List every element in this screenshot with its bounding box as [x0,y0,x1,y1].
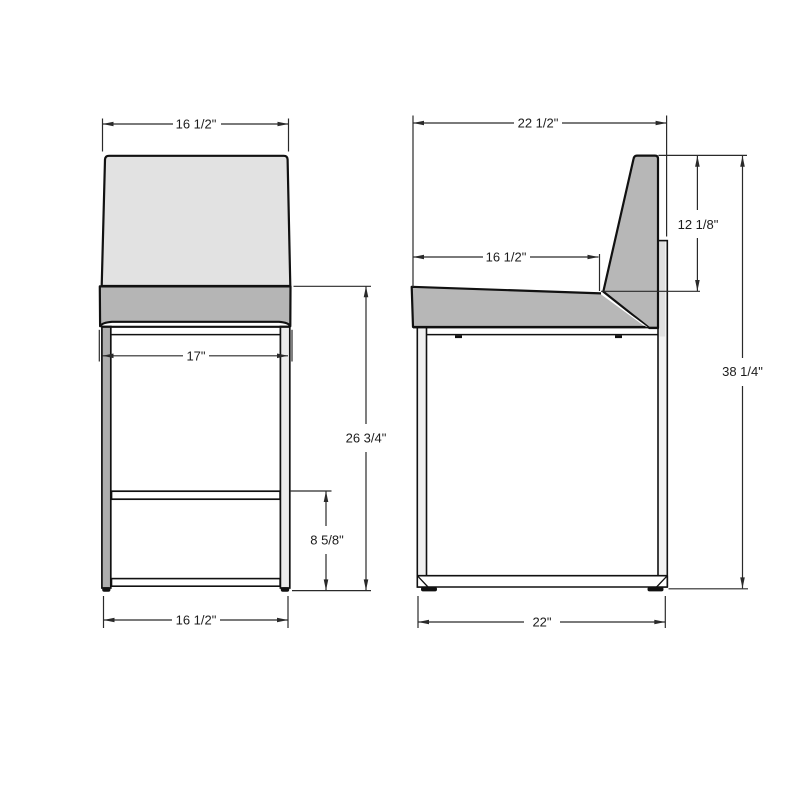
svg-text:22": 22" [532,615,551,630]
svg-text:16 1/2": 16 1/2" [176,613,217,628]
svg-text:16 1/2": 16 1/2" [486,250,527,265]
svg-text:26 3/4": 26 3/4" [346,431,387,446]
svg-text:12 1/8": 12 1/8" [678,217,719,232]
svg-text:16 1/2": 16 1/2" [176,117,217,132]
svg-text:17": 17" [186,348,205,363]
svg-text:22 1/2": 22 1/2" [518,116,559,131]
svg-text:38 1/4": 38 1/4" [722,364,763,379]
svg-text:8 5/8": 8 5/8" [310,533,344,548]
